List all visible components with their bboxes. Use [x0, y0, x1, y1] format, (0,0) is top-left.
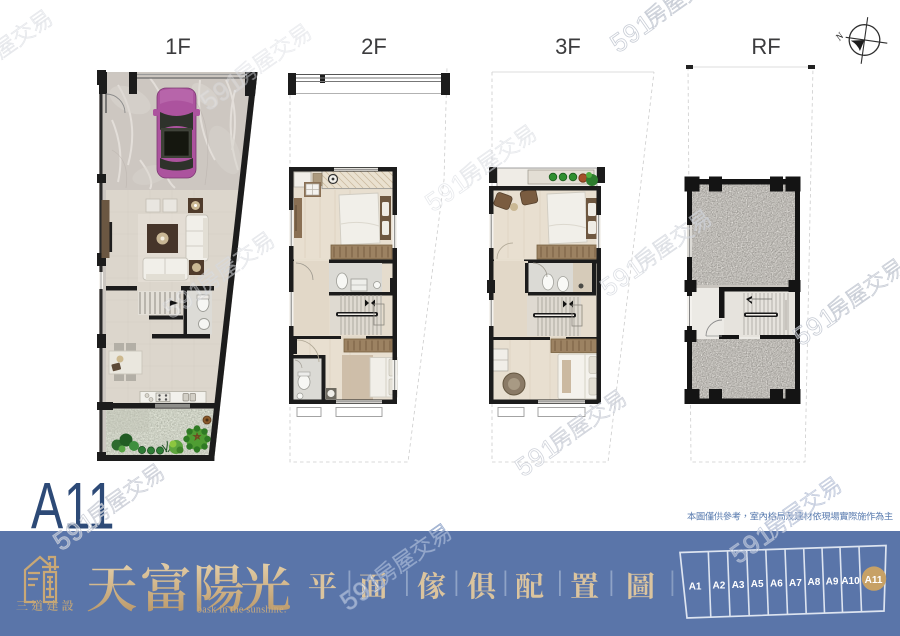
svg-text:A7: A7 [789, 578, 802, 589]
svg-text:bask in the sunshine.: bask in the sunshine. [197, 605, 287, 616]
svg-text:A10: A10 [841, 576, 860, 587]
svg-text:N: N [833, 30, 847, 44]
svg-text:A2: A2 [713, 581, 726, 592]
svg-text:A6: A6 [770, 579, 783, 590]
svg-text:RF: RF [751, 34, 780, 59]
svg-text:A11: A11 [865, 575, 883, 586]
svg-text:2F: 2F [361, 34, 387, 59]
svg-text:A1: A1 [689, 581, 702, 592]
svg-text:3F: 3F [555, 34, 581, 59]
svg-text:A3: A3 [732, 580, 745, 591]
svg-text:A8: A8 [808, 577, 821, 588]
svg-text:A5: A5 [751, 579, 764, 590]
svg-text:1F: 1F [165, 34, 191, 59]
svg-text:A9: A9 [826, 577, 839, 588]
